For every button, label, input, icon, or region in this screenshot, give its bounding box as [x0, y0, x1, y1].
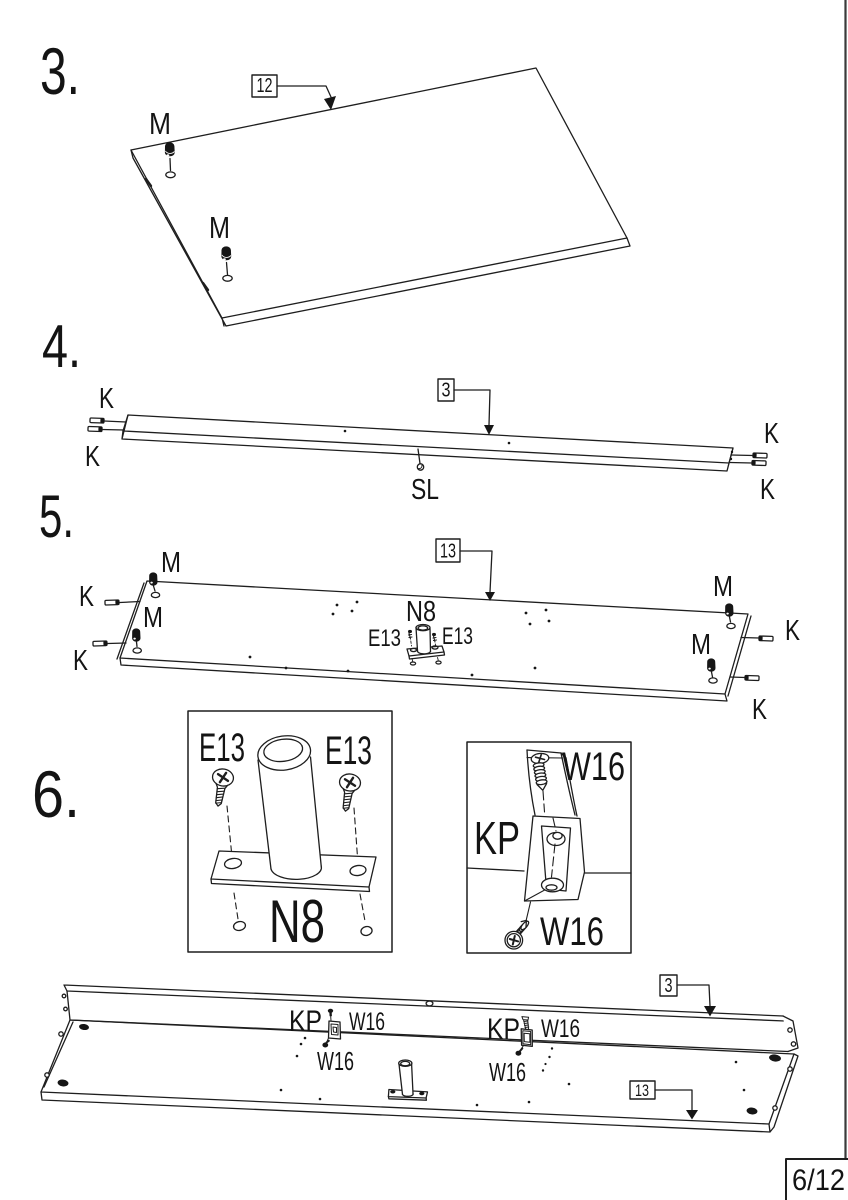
- svg-text:KP: KP: [474, 812, 520, 864]
- svg-text:13: 13: [440, 541, 456, 563]
- svg-text:K: K: [99, 383, 115, 415]
- svg-text:W16: W16: [562, 745, 625, 789]
- svg-text:K: K: [752, 694, 768, 726]
- svg-text:K: K: [760, 474, 776, 506]
- svg-text:E13: E13: [368, 625, 401, 652]
- svg-text:N8: N8: [406, 596, 436, 628]
- svg-text:M: M: [209, 210, 230, 245]
- svg-text:3: 3: [665, 975, 673, 997]
- svg-text:6/12: 6/12: [792, 1164, 845, 1197]
- svg-text:6.: 6.: [32, 757, 80, 831]
- svg-text:M: M: [161, 547, 181, 579]
- svg-text:5.: 5.: [39, 483, 74, 550]
- svg-text:12: 12: [257, 75, 273, 97]
- svg-text:E13: E13: [199, 726, 245, 770]
- svg-text:K: K: [73, 645, 89, 677]
- svg-text:M: M: [691, 629, 711, 661]
- svg-text:13: 13: [635, 1081, 649, 1100]
- svg-text:W16: W16: [349, 1008, 385, 1036]
- svg-text:3: 3: [442, 380, 451, 402]
- svg-text:3.: 3.: [40, 34, 80, 108]
- svg-text:KP: KP: [289, 1005, 322, 1038]
- svg-text:SL: SL: [411, 474, 439, 506]
- svg-text:N8: N8: [269, 888, 325, 955]
- svg-text:4.: 4.: [42, 313, 81, 380]
- svg-text:M: M: [143, 602, 163, 634]
- svg-text:E13: E13: [442, 623, 473, 650]
- svg-text:M: M: [713, 571, 733, 603]
- svg-text:W16: W16: [541, 1015, 580, 1043]
- svg-text:W16: W16: [489, 1057, 526, 1087]
- svg-text:K: K: [764, 418, 780, 450]
- svg-text:M: M: [149, 106, 171, 141]
- svg-text:W16: W16: [540, 910, 604, 954]
- svg-text:W16: W16: [317, 1046, 354, 1076]
- svg-text:K: K: [79, 581, 95, 613]
- svg-text:KP: KP: [487, 1013, 520, 1046]
- svg-text:K: K: [85, 441, 101, 473]
- svg-text:K: K: [785, 615, 801, 647]
- svg-text:E13: E13: [325, 729, 372, 773]
